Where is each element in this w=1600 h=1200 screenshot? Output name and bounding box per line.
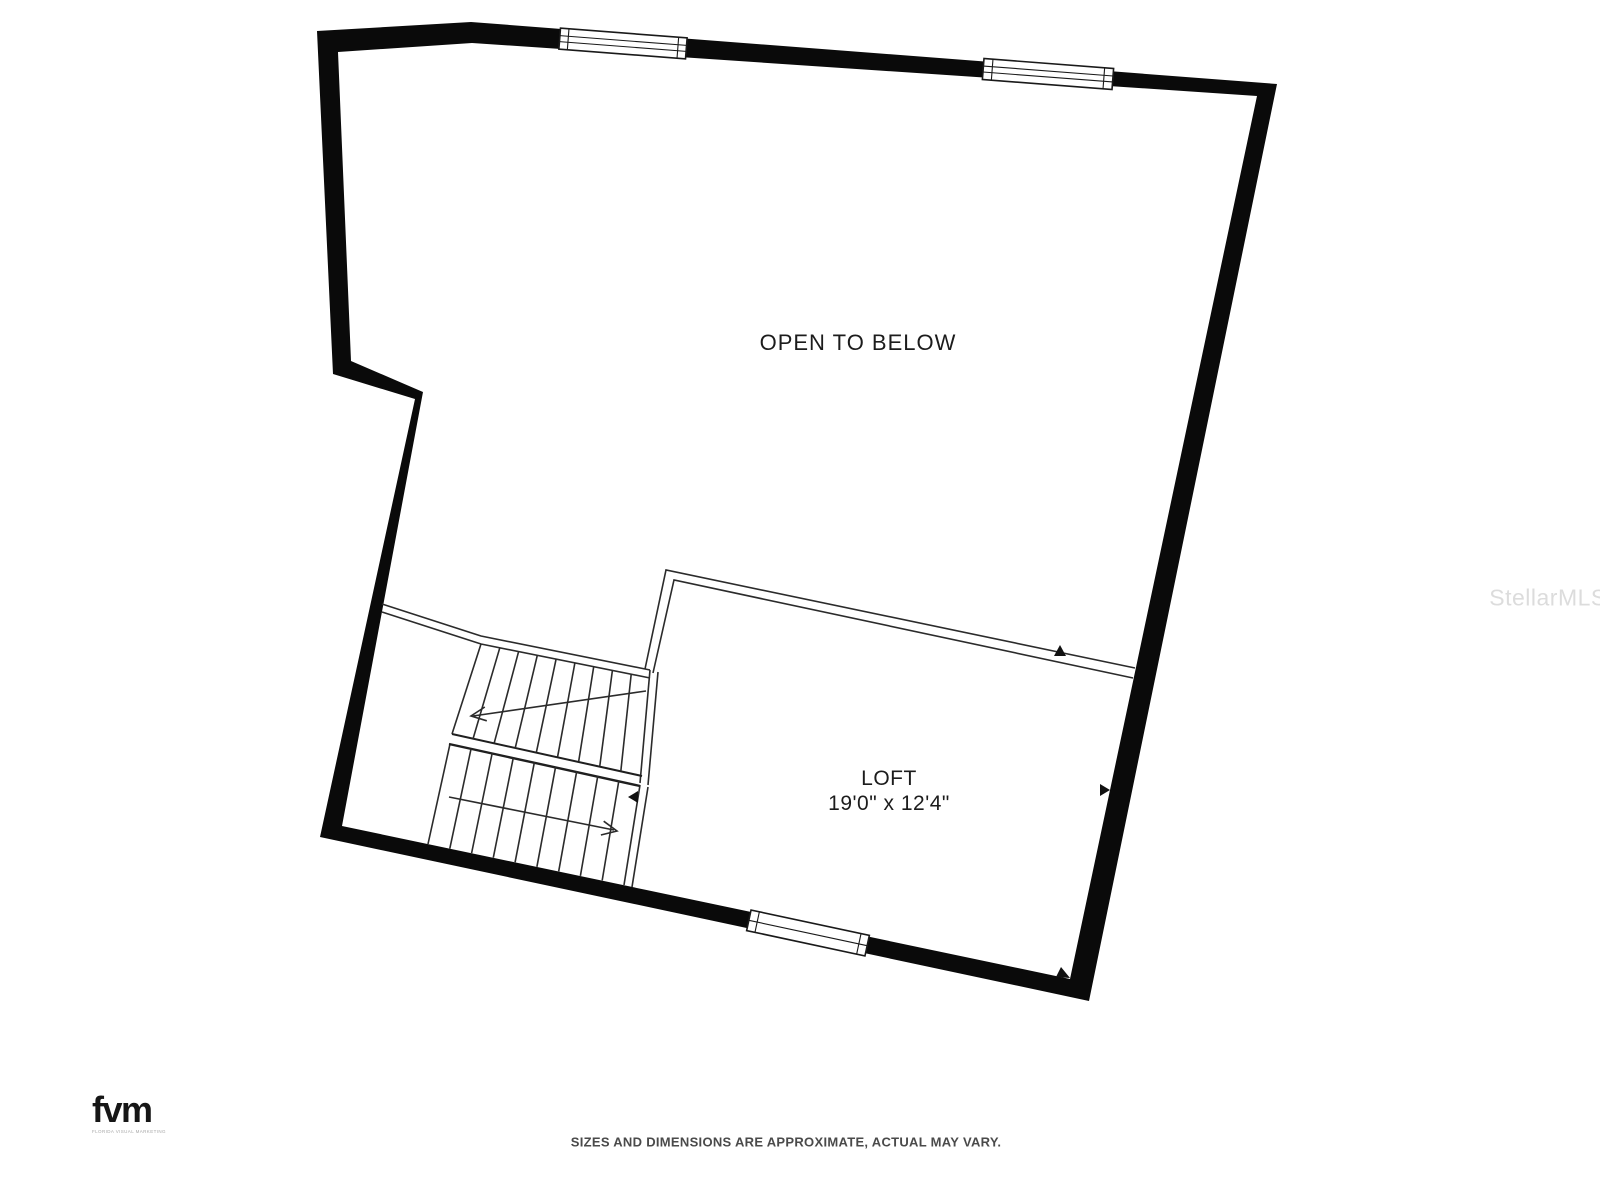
fvm-logo: fvm FLORIDA VISUAL MARKETING <box>92 1092 166 1134</box>
exterior-walls <box>317 22 1277 1001</box>
stair-direction-arrow-upper <box>471 691 646 721</box>
disclaimer-text: SIZES AND DIMENSIONS ARE APPROXIMATE, AC… <box>571 1135 1002 1150</box>
stair-treads-upper <box>473 648 631 771</box>
loft-boundary-marker-icon <box>1054 645 1066 656</box>
loft-boundary-wall <box>645 570 1135 678</box>
window-symbol-top-right <box>982 59 1113 90</box>
loft-label-group: LOFT 19'0" x 12'4" <box>828 766 950 816</box>
stellar-mls-watermark: StellarMLS <box>1489 585 1600 612</box>
stair-railing <box>382 604 650 678</box>
floor-plan-page: OPEN TO BELOW LOFT 19'0" x 12'4" Stellar… <box>0 0 1600 1200</box>
fvm-logo-text: fvm <box>92 1092 166 1128</box>
window-symbol-top-left <box>559 28 687 59</box>
bottom-corner-marker-icon <box>1056 967 1070 978</box>
right-wall-marker-icon <box>1100 784 1110 796</box>
loft-dimensions: 19'0" x 12'4" <box>828 791 950 816</box>
loft-label: LOFT <box>828 766 950 791</box>
stair-direction-arrow-lower <box>449 797 617 835</box>
stair-edge-marker-icon <box>628 791 638 803</box>
floor-plan-drawing <box>0 0 1600 1200</box>
fvm-logo-subtext: FLORIDA VISUAL MARKETING <box>92 1129 166 1134</box>
open-to-below-label: OPEN TO BELOW <box>760 330 957 356</box>
staircase <box>428 644 658 887</box>
window-symbol-bottom <box>747 910 870 956</box>
